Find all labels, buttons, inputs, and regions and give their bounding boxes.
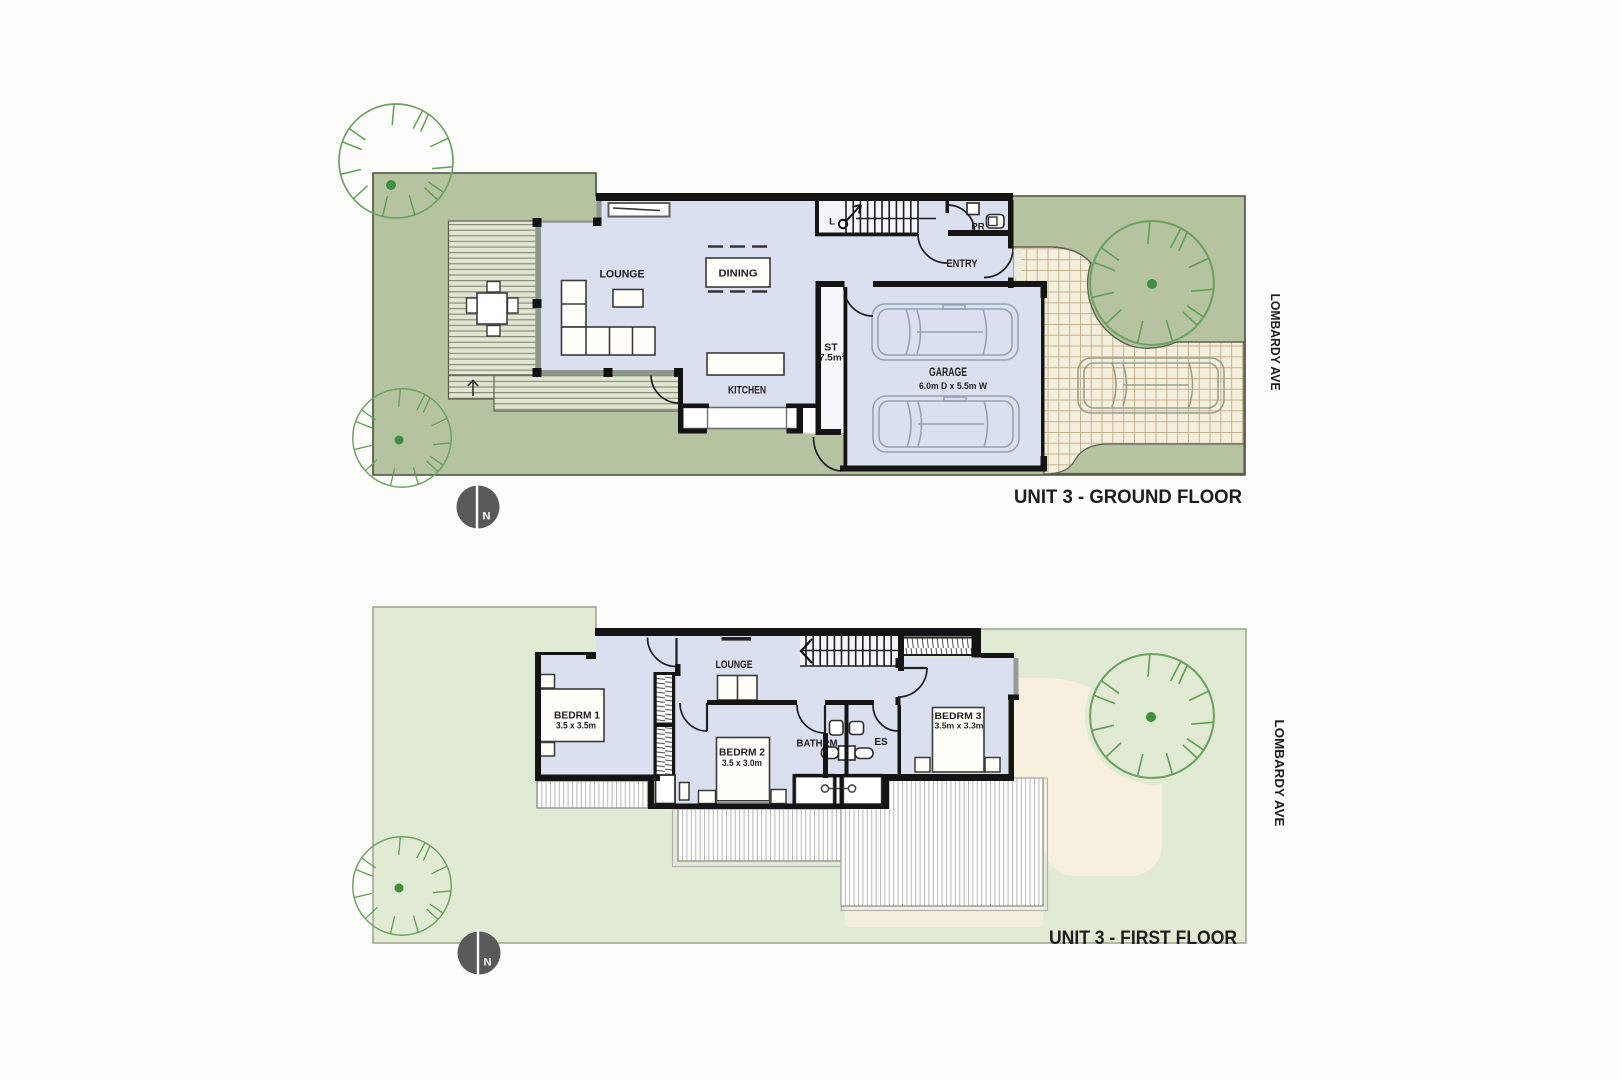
svg-text:3.5 x 3.5m: 3.5 x 3.5m — [556, 721, 596, 731]
svg-text:ENTRY: ENTRY — [947, 258, 979, 270]
svg-text:UNIT 3 - GROUND FLOOR: UNIT 3 - GROUND FLOOR — [1014, 487, 1242, 508]
svg-text:LOUNGE: LOUNGE — [716, 659, 753, 671]
svg-text:ES: ES — [874, 737, 888, 748]
svg-text:PR: PR — [971, 222, 984, 233]
svg-text:GARAGE: GARAGE — [929, 365, 967, 379]
svg-text:LOMBARDY AVE: LOMBARDY AVE — [1272, 720, 1286, 827]
svg-text:UNIT 3 - FIRST FLOOR: UNIT 3 - FIRST FLOOR — [1049, 928, 1237, 949]
svg-text:N: N — [484, 957, 492, 969]
svg-text:3.5m x 3.3m: 3.5m x 3.3m — [935, 721, 984, 731]
svg-text:KITCHEN: KITCHEN — [728, 385, 766, 397]
svg-text:L: L — [829, 217, 835, 228]
svg-text:BEDRM 2: BEDRM 2 — [719, 748, 765, 759]
svg-text:6.0m D x 5.5m W: 6.0m D x 5.5m W — [919, 381, 987, 392]
svg-text:7.5m²: 7.5m² — [819, 353, 845, 364]
svg-text:LOMBARDY AVE: LOMBARDY AVE — [1268, 294, 1282, 391]
svg-text:3.5 x 3.0m: 3.5 x 3.0m — [722, 758, 762, 768]
svg-text:BATHRM: BATHRM — [797, 739, 838, 750]
svg-text:DINING: DINING — [719, 268, 758, 280]
svg-text:LOUNGE: LOUNGE — [600, 269, 645, 281]
svg-text:N: N — [483, 511, 491, 523]
